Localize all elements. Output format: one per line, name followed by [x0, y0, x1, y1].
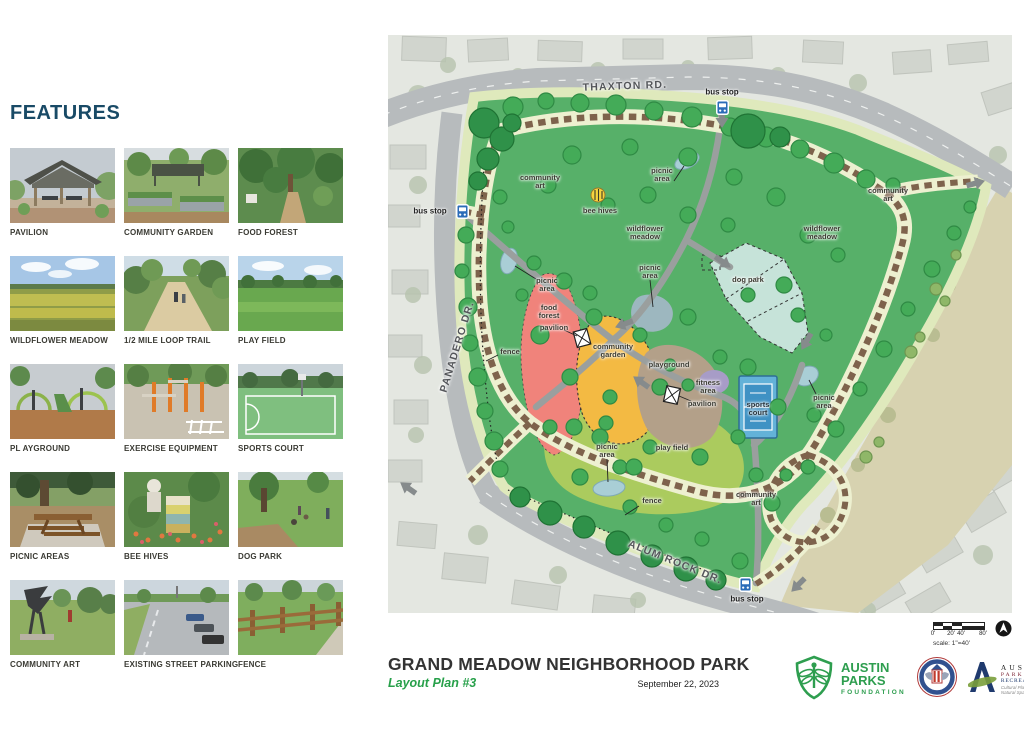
feature-item: BEE HIVES	[124, 472, 229, 561]
apr-a-leaf-icon	[968, 659, 998, 700]
map-feature-label: picnic area	[536, 277, 558, 294]
feature-label: PLAY FIELD	[238, 336, 343, 345]
map-feature-label: picnic area	[651, 167, 673, 184]
map-feature-label: community art	[868, 187, 908, 204]
plan-sheet: FEATURES PAVILIONCOMMUNITY GARDENFOOD FO…	[0, 0, 1024, 731]
features-heading: FEATURES	[10, 102, 120, 125]
feature-item: COMMUNITY ART	[10, 580, 115, 669]
map-feature-label: community art	[520, 174, 560, 191]
plan-date: September 22, 2023	[388, 679, 719, 689]
exercise-equipment-photo	[124, 364, 229, 439]
city-of-austin-seal-icon	[916, 656, 958, 703]
map-feature-label: pavilion	[540, 324, 568, 332]
features-grid: PAVILIONCOMMUNITY GARDENFOOD FORESTWILDF…	[10, 148, 344, 669]
play-field-photo	[238, 256, 343, 331]
feature-label: COMMUNITY GARDEN	[124, 228, 229, 237]
map-feature-label: sports court	[747, 401, 770, 418]
bus-stop-label: bus stop	[705, 88, 738, 97]
apr-name-line1: AUSTIN	[1001, 663, 1024, 672]
pavilion-photo	[10, 148, 115, 223]
feature-item: PLAY FIELD	[238, 256, 343, 345]
map-feature-label: dog park	[732, 276, 764, 284]
apf-name-line2: PARKS	[841, 675, 906, 687]
feature-item: SPORTS COURT	[238, 364, 343, 453]
map-feature-label: community garden	[593, 343, 633, 360]
sports-court-photo	[238, 364, 343, 439]
bus-stop-label: bus stop	[730, 595, 763, 604]
map-feature-label: pavilion	[688, 400, 716, 408]
feature-label: PICNIC AREAS	[10, 552, 115, 561]
feature-label: EXISTING STREET PARKING	[124, 660, 229, 669]
bee-icon	[591, 188, 605, 202]
scale-tick-label: 0'	[931, 631, 935, 637]
community-art-photo	[10, 580, 115, 655]
fence-photo	[238, 580, 343, 655]
apr-tagline: Cultural Places, Natural Spaces	[1001, 685, 1024, 695]
feature-label: FENCE	[238, 660, 343, 669]
map-feature-label: picnic area	[639, 264, 661, 281]
street-parking-photo	[124, 580, 229, 655]
feature-label: BEE HIVES	[124, 552, 229, 561]
feature-label: SPORTS COURT	[238, 444, 343, 453]
map-feature-label: food forest	[539, 304, 560, 321]
scale-note: scale: 1"=40'	[933, 640, 970, 647]
bus-stop-icon	[716, 100, 729, 115]
feature-item: EXISTING STREET PARKING	[124, 580, 229, 669]
community-garden-photo	[124, 148, 229, 223]
food-forest-photo	[238, 148, 343, 223]
wildflower-meadow-photo	[10, 256, 115, 331]
loop-trail-photo	[124, 256, 229, 331]
feature-item: FENCE	[238, 580, 343, 669]
bus-stop-icon	[456, 204, 469, 219]
feature-item: WILDFLOWER MEADOW	[10, 256, 115, 345]
bee-hives-photo	[124, 472, 229, 547]
feature-label: FOOD FOREST	[238, 228, 343, 237]
feature-item: FOOD FOREST	[238, 148, 343, 237]
apr-name-line3: RECREATION	[1001, 678, 1024, 684]
apf-shield-dragonfly-icon	[793, 654, 835, 705]
map-feature-label: picnic area	[813, 394, 835, 411]
map-feature-label: fence	[642, 497, 662, 505]
map-feature-label: bee hives	[583, 207, 617, 215]
scale-tick-label: 40'	[957, 631, 965, 637]
scale-tick-label: 20'	[947, 631, 955, 637]
feature-item: PAVILION	[10, 148, 115, 237]
map-feature-label: playground	[649, 361, 690, 369]
feature-item: DOG PARK	[238, 472, 343, 561]
map-feature-label: fitness area	[696, 379, 720, 396]
scale-tick-label: 80'	[979, 631, 987, 637]
apf-name-line3: FOUNDATION	[841, 689, 906, 696]
map-feature-label: wildflower meadow	[804, 225, 841, 242]
feature-label: WILDFLOWER MEADOW	[10, 336, 115, 345]
scale-bar: 0'20'40'80' scale: 1"=40'	[933, 620, 1013, 652]
austin-parks-foundation-logo: AUSTIN PARKS FOUNDATION	[793, 654, 906, 705]
map-feature-label: fence	[500, 348, 520, 356]
feature-label: PAVILION	[10, 228, 115, 237]
page-title: GRAND MEADOW NEIGHBORHOOD PARK	[388, 654, 750, 675]
north-arrow-icon	[995, 620, 1012, 642]
feature-label: 1/2 MILE LOOP TRAIL	[124, 336, 229, 345]
bus-stop-label: bus stop	[413, 207, 446, 216]
feature-label: EXERCISE EQUIPMENT	[124, 444, 229, 453]
feature-item: COMMUNITY GARDEN	[124, 148, 229, 237]
feature-item: PL AYGROUND	[10, 364, 115, 453]
feature-label: PL AYGROUND	[10, 444, 115, 453]
feature-label: DOG PARK	[238, 552, 343, 561]
logo-strip: AUSTIN PARKS FOUNDATION	[793, 653, 1024, 705]
feature-item: 1/2 MILE LOOP TRAIL	[124, 256, 229, 345]
austin-parks-recreation-logo: AUSTIN PARKS & RECREATION Cultural Place…	[968, 659, 1024, 700]
picnic-areas-photo	[10, 472, 115, 547]
scale-bar-graphic	[933, 622, 985, 630]
dog-park-photo	[238, 472, 343, 547]
map-feature-label: community art	[736, 491, 776, 508]
site-plan-svg	[388, 35, 1012, 613]
bus-stop-icon	[739, 577, 752, 592]
map-feature-label: play field	[656, 444, 689, 452]
feature-item: PICNIC AREAS	[10, 472, 115, 561]
feature-label: COMMUNITY ART	[10, 660, 115, 669]
map-feature-label: picnic area	[596, 443, 618, 460]
playground-photo	[10, 364, 115, 439]
feature-item: EXERCISE EQUIPMENT	[124, 364, 229, 453]
map-feature-label: wildflower meadow	[627, 225, 664, 242]
site-plan-map: THAXTON RD.PANADERO DR.ALUM ROCK DR.comm…	[388, 35, 1012, 613]
